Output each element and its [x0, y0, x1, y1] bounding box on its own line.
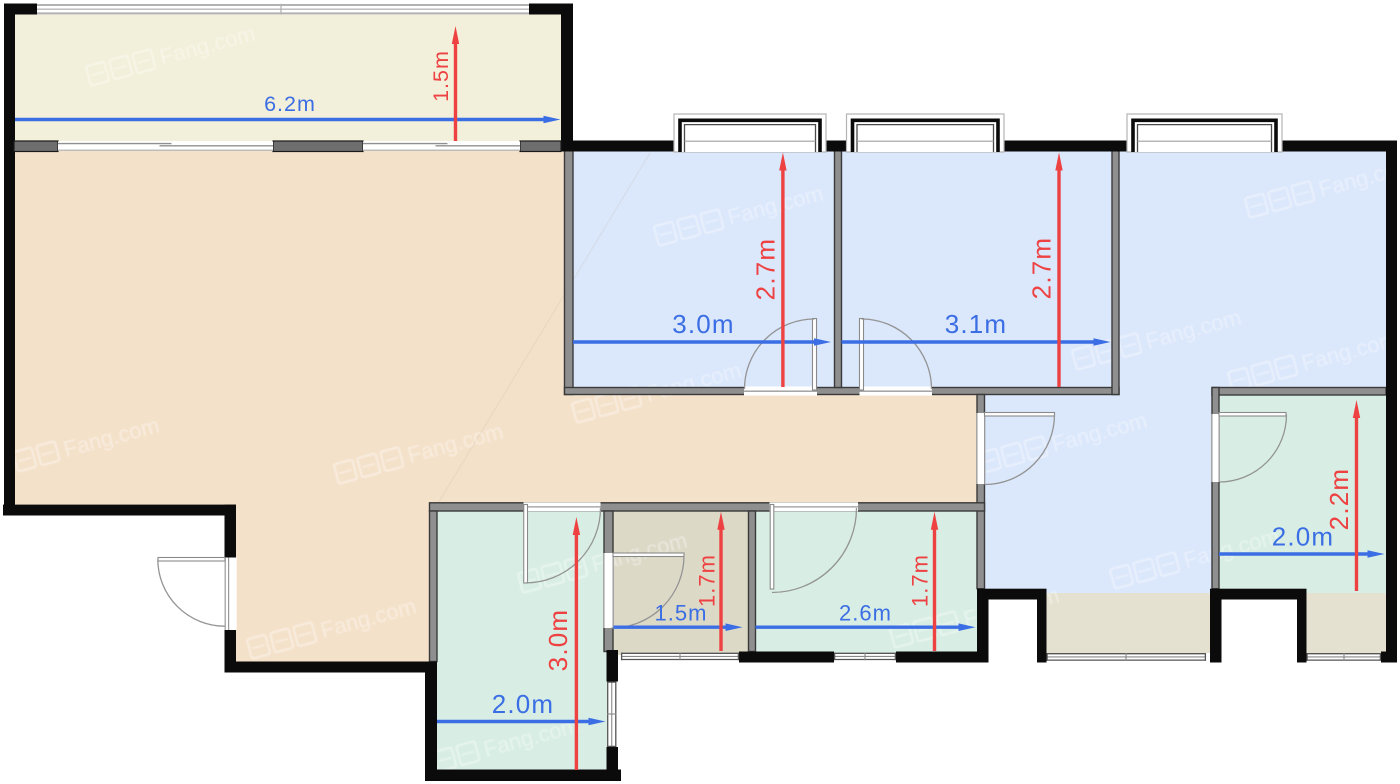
svg-text:3.1m: 3.1m	[945, 309, 1008, 339]
svg-text:6.2m: 6.2m	[264, 92, 316, 116]
svg-text:2.6m: 2.6m	[839, 601, 892, 626]
svg-text:2.7m: 2.7m	[1027, 237, 1057, 300]
svg-text:3.0m: 3.0m	[543, 609, 573, 672]
svg-text:Fang.com: Fang.com	[961, 43, 1062, 92]
svg-text:2.2m: 2.2m	[1324, 468, 1354, 531]
svg-text:1.7m: 1.7m	[694, 554, 719, 607]
svg-text:1.5m: 1.5m	[429, 50, 453, 102]
svg-text:2.0m: 2.0m	[492, 689, 555, 719]
svg-text:2.7m: 2.7m	[750, 238, 780, 301]
svg-text:1.7m: 1.7m	[907, 554, 932, 607]
svg-text:3.0m: 3.0m	[672, 309, 735, 339]
